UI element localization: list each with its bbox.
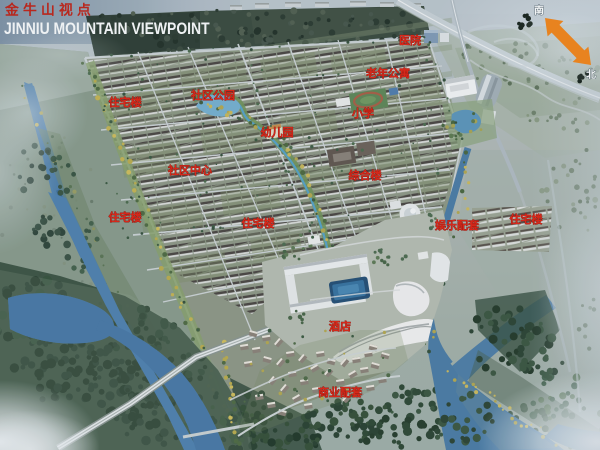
svg-text:幼儿园: 幼儿园	[261, 125, 294, 139]
svg-text:医院: 医院	[399, 33, 421, 47]
svg-text:住宅楼: 住宅楼	[109, 210, 142, 224]
svg-text:住宅楼: 住宅楼	[242, 216, 275, 230]
svg-text:社区中心: 社区中心	[167, 163, 212, 177]
svg-text:南: 南	[534, 4, 544, 17]
svg-text:社区公园: 社区公园	[190, 88, 235, 102]
svg-text:北: 北	[586, 68, 596, 81]
svg-text:商业配套: 商业配套	[318, 385, 363, 399]
svg-text:综合楼: 综合楼	[349, 168, 382, 182]
svg-text:老年公寓: 老年公寓	[365, 66, 410, 80]
svg-text:JINNIU MOUNTAIN VIEWPOINT: JINNIU MOUNTAIN VIEWPOINT	[4, 20, 210, 38]
svg-text:酒店: 酒店	[329, 319, 351, 333]
svg-text:金牛山视点: 金牛山视点	[4, 2, 95, 18]
svg-text:住宅楼: 住宅楼	[109, 95, 142, 109]
svg-text:娱乐配套: 娱乐配套	[435, 218, 480, 232]
svg-text:住宅楼: 住宅楼	[510, 212, 543, 226]
svg-text:小学: 小学	[351, 106, 374, 120]
